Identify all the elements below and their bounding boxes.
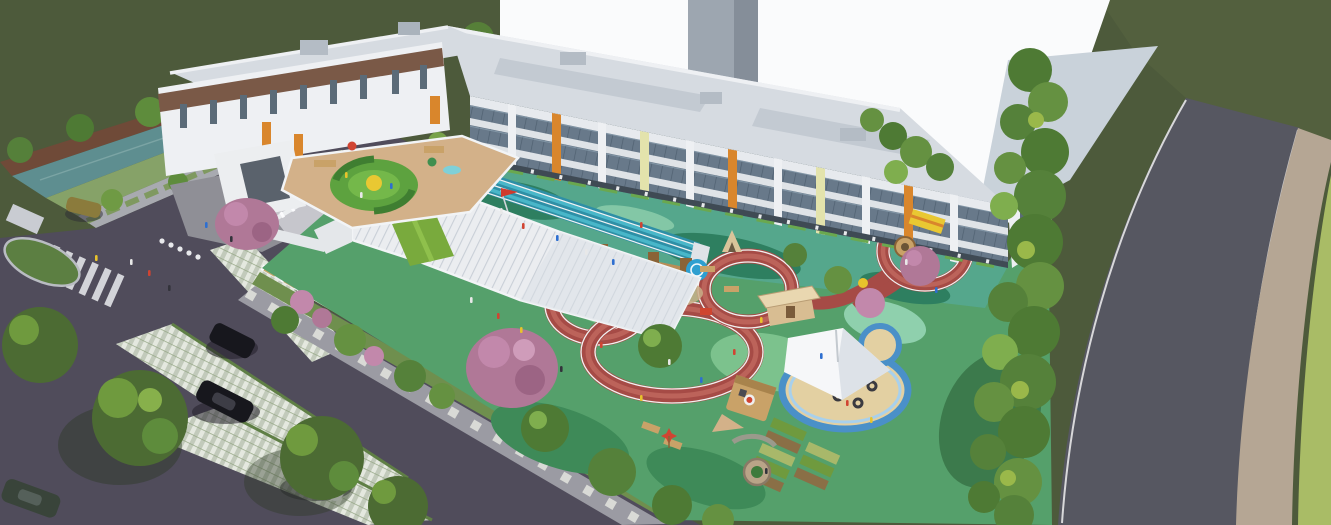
checker-stand	[700, 308, 712, 315]
blossom-tree	[900, 246, 940, 286]
roof-box	[300, 40, 328, 55]
tree	[334, 324, 366, 356]
roof-unit	[560, 52, 586, 65]
tree	[638, 324, 682, 368]
roof-unit	[700, 92, 722, 104]
terrace-bench	[314, 160, 336, 167]
yellow-ball-marker	[858, 278, 868, 288]
terrace-umbrella-red	[348, 142, 357, 151]
tree	[588, 448, 636, 496]
picnic-table	[724, 286, 739, 292]
terrace-water-table	[443, 166, 461, 175]
sand-play-area	[782, 326, 908, 429]
terrace-bench	[424, 146, 444, 153]
roof-box	[398, 22, 420, 35]
tree	[652, 485, 692, 525]
blossom-shrub	[312, 308, 332, 328]
playhouse-door	[786, 306, 795, 318]
maze-center-table	[366, 175, 382, 191]
gate-blossom-tree	[215, 198, 279, 250]
left-wing-orange-accent	[430, 96, 440, 124]
picnic-table	[700, 266, 715, 272]
blossom-tree	[855, 288, 885, 318]
blossom-shrub	[364, 346, 384, 366]
big-blossom-tree	[466, 328, 558, 408]
campus-aerial-rendering	[0, 0, 1331, 525]
roof-unit	[840, 128, 866, 141]
rendering-canvas	[0, 0, 1331, 525]
tree	[824, 266, 852, 294]
tree	[271, 306, 299, 334]
round-planter-plant	[751, 466, 763, 478]
tree	[394, 360, 426, 392]
tree	[783, 243, 807, 267]
tree	[429, 383, 455, 409]
tree	[521, 404, 569, 452]
terrace-umbrella	[428, 158, 437, 167]
